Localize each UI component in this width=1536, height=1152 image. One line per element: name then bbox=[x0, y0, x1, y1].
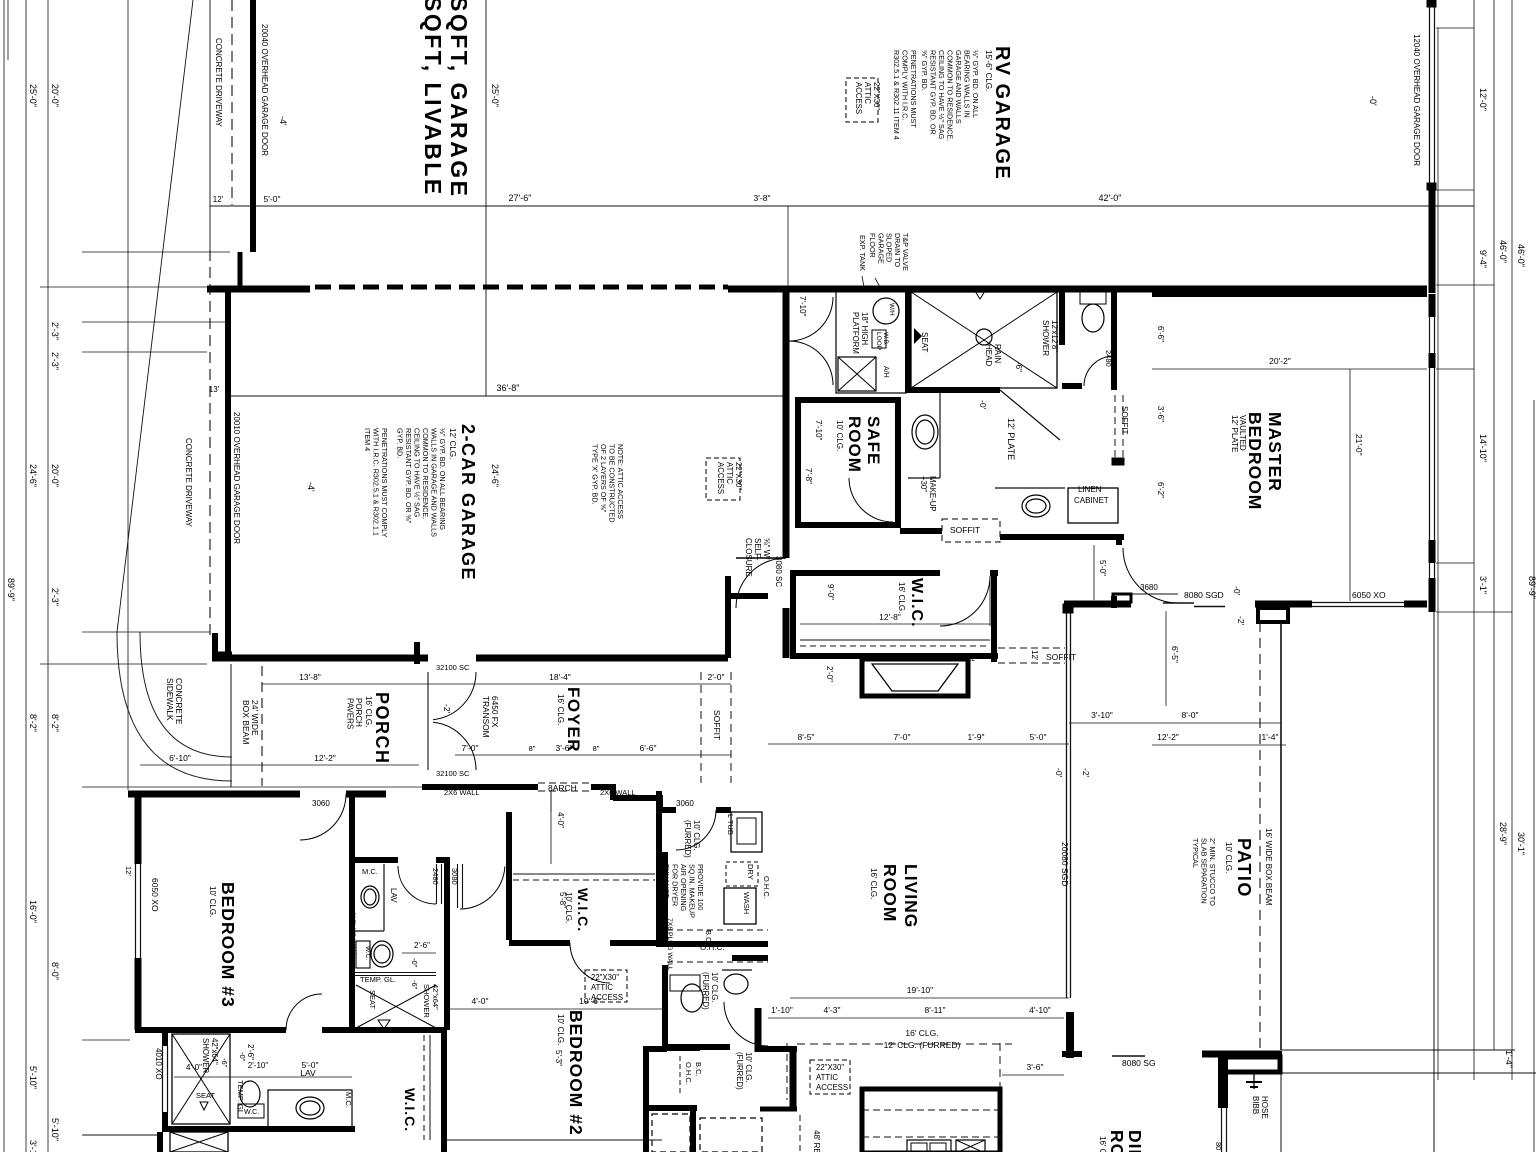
svg-text:8'-11": 8'-11" bbox=[924, 1005, 945, 1015]
svg-text:ACCESS: ACCESS bbox=[854, 82, 863, 114]
svg-text:12': 12' bbox=[124, 866, 133, 876]
svg-text:5'-10": 5'-10" bbox=[50, 1118, 60, 1141]
svg-text:⅝" GYP. BD.: ⅝" GYP. BD. bbox=[920, 50, 929, 91]
svg-text:SOFFIT: SOFFIT bbox=[1046, 652, 1076, 662]
svg-text:ATTIC: ATTIC bbox=[816, 1073, 838, 1082]
svg-text:22"X30": 22"X30" bbox=[734, 462, 743, 490]
svg-text:CLOSURE: CLOSURE bbox=[744, 538, 753, 577]
svg-text:25'-0": 25'-0" bbox=[28, 84, 38, 107]
svg-text:ATTIC: ATTIC bbox=[725, 462, 734, 484]
svg-text:DINING: DINING bbox=[1125, 1130, 1145, 1152]
svg-text:18'-4": 18'-4" bbox=[549, 672, 571, 682]
svg-text:16' CLG.: 16' CLG. bbox=[1098, 1136, 1107, 1152]
svg-text:+30": +30" bbox=[919, 476, 928, 492]
svg-text:12' PLATE: 12' PLATE bbox=[1230, 415, 1239, 452]
svg-text:9'-0": 9'-0" bbox=[826, 584, 835, 600]
svg-text:WASH: WASH bbox=[742, 892, 751, 914]
svg-text:SHOWER: SHOWER bbox=[1041, 320, 1050, 356]
svg-text:7'-0": 7'-0" bbox=[462, 743, 479, 753]
svg-text:16' CLG.: 16' CLG. bbox=[364, 696, 373, 727]
svg-text:2'-0": 2'-0" bbox=[825, 666, 834, 682]
svg-text:SEAT: SEAT bbox=[920, 332, 929, 352]
svg-text:LAV: LAV bbox=[389, 888, 398, 903]
svg-text:4'-0": 4'-0" bbox=[556, 812, 565, 828]
svg-text:20080 SGD: 20080 SGD bbox=[1060, 842, 1070, 886]
svg-text:5'-0": 5'-0" bbox=[264, 194, 281, 204]
svg-text:2X6 WALL: 2X6 WALL bbox=[444, 788, 480, 797]
svg-text:6'-5": 6'-5" bbox=[1170, 646, 1180, 663]
svg-text:32100 SC: 32100 SC bbox=[436, 769, 470, 778]
svg-text:20'-0": 20'-0" bbox=[50, 84, 60, 107]
svg-text:-0': -0' bbox=[1232, 586, 1242, 596]
svg-text:46'-0": 46'-0" bbox=[1516, 244, 1526, 267]
svg-text:ROOM: ROOM bbox=[845, 416, 864, 473]
svg-text:32100 SC: 32100 SC bbox=[436, 663, 470, 672]
svg-text:4'-3": 4'-3" bbox=[824, 1005, 841, 1015]
svg-text:PLATFORM: PLATFORM bbox=[851, 312, 860, 354]
svg-text:-0": -0" bbox=[410, 958, 419, 968]
svg-text:28'-9": 28'-9" bbox=[1498, 822, 1508, 845]
svg-text:2'-10": 2'-10" bbox=[248, 1061, 269, 1070]
svg-text:12'-2": 12'-2" bbox=[314, 753, 336, 763]
svg-text:FLOOR: FLOOR bbox=[868, 233, 877, 258]
svg-text:BOX BEAM: BOX BEAM bbox=[241, 700, 251, 744]
svg-text:5'-0": 5'-0" bbox=[1098, 560, 1107, 576]
svg-text:GYP. BD.: GYP. BD. bbox=[396, 428, 405, 458]
svg-text:3680: 3680 bbox=[1140, 583, 1158, 592]
svg-text:2'-6": 2'-6" bbox=[414, 941, 430, 950]
svg-text:O.H.C.: O.H.C. bbox=[700, 943, 724, 952]
svg-text:ROOM: ROOM bbox=[880, 864, 900, 922]
svg-text:⅝" W/: ⅝" W/ bbox=[762, 538, 771, 560]
svg-text:6" PLMB WALL: 6" PLMB WALL bbox=[349, 912, 356, 957]
svg-text:SAFE: SAFE bbox=[864, 416, 883, 465]
svg-text:27'-6": 27'-6" bbox=[509, 193, 532, 203]
svg-text:12': 12' bbox=[1030, 650, 1039, 661]
svg-text:8'-2": 8'-2" bbox=[28, 714, 38, 732]
svg-text:14'-10": 14'-10" bbox=[1478, 434, 1488, 462]
svg-text:ATTIC: ATTIC bbox=[591, 983, 613, 992]
svg-text:6050 XO: 6050 XO bbox=[1352, 590, 1386, 600]
svg-text:4'-0": 4'-0" bbox=[186, 1063, 202, 1072]
svg-text:8'-2": 8'-2" bbox=[50, 714, 60, 732]
svg-text:TRANSOM: TRANSOM bbox=[481, 696, 491, 738]
svg-text:HEAD: HEAD bbox=[984, 344, 993, 366]
svg-text:3'-6": 3'-6" bbox=[556, 743, 573, 753]
svg-text:SIDEWALK: SIDEWALK bbox=[165, 678, 175, 721]
svg-text:15'-6" CLG.: 15'-6" CLG. bbox=[984, 50, 993, 91]
svg-text:7X6 PLNG WALL: 7X6 PLNG WALL bbox=[666, 918, 673, 971]
svg-text:16' WIDE BOX BEAM: 16' WIDE BOX BEAM bbox=[1264, 828, 1273, 906]
svg-text:10' CLG.: 10' CLG. bbox=[208, 886, 217, 917]
svg-text:2480: 2480 bbox=[1104, 350, 1113, 367]
svg-text:6'-6": 6'-6" bbox=[1156, 326, 1165, 342]
svg-text:89'-9": 89'-9" bbox=[6, 578, 16, 601]
svg-text:2'-3": 2'-3" bbox=[50, 588, 60, 606]
svg-text:21'-0": 21'-0" bbox=[1354, 434, 1364, 456]
svg-text:PATIO: PATIO bbox=[1234, 838, 1254, 898]
svg-text:10'-6": 10'-6" bbox=[579, 996, 601, 1006]
svg-text:EXP. TANK: EXP. TANK bbox=[858, 235, 867, 271]
svg-text:5'-3": 5'-3" bbox=[554, 1050, 563, 1066]
svg-text:PAVERS: PAVERS bbox=[346, 698, 355, 729]
svg-text:LINEN: LINEN bbox=[1078, 485, 1102, 494]
svg-text:8080 SGD: 8080 SGD bbox=[1184, 590, 1224, 600]
svg-text:3'-8": 3'-8" bbox=[754, 193, 771, 203]
svg-text:10' CLG.: 10' CLG. bbox=[710, 972, 719, 1003]
svg-text:7'-10": 7'-10" bbox=[798, 296, 807, 317]
svg-text:12' CLG. (FURRED): 12' CLG. (FURRED) bbox=[884, 1040, 961, 1050]
svg-text:ACCESS: ACCESS bbox=[716, 462, 725, 494]
svg-text:L TUB: L TUB bbox=[726, 814, 735, 835]
svg-text:16'-0": 16'-0" bbox=[28, 900, 38, 923]
svg-text:W.B.: W.B. bbox=[882, 332, 889, 346]
svg-text:8": 8" bbox=[593, 744, 600, 753]
svg-text:-2': -2' bbox=[1081, 768, 1091, 778]
svg-text:4'-10": 4'-10" bbox=[1029, 1005, 1051, 1015]
svg-text:BEDROOM: BEDROOM bbox=[1245, 412, 1265, 510]
svg-text:12' PLATE: 12' PLATE bbox=[1006, 418, 1016, 460]
svg-text:22"X30": 22"X30" bbox=[816, 1063, 844, 1072]
svg-text:-4': -4' bbox=[306, 482, 316, 492]
svg-text:-2': -2' bbox=[442, 704, 452, 714]
svg-text:SEAT: SEAT bbox=[368, 990, 377, 1009]
svg-text:42"x64": 42"x64" bbox=[431, 984, 440, 1010]
svg-text:2-CAR GARAGE: 2-CAR GARAGE bbox=[458, 424, 478, 581]
svg-text:6'-2": 6'-2" bbox=[1156, 482, 1165, 498]
svg-text:12' CLG.: 12' CLG. bbox=[448, 428, 457, 459]
svg-text:13'-8": 13'-8" bbox=[299, 672, 321, 682]
svg-text:-6": -6" bbox=[220, 1058, 229, 1068]
svg-text:TEMP. GL.: TEMP. GL. bbox=[360, 975, 396, 984]
svg-text:16' CLG.: 16' CLG. bbox=[905, 1028, 938, 1038]
svg-text:A/H: A/H bbox=[882, 366, 889, 378]
svg-text:8'-0": 8'-0" bbox=[1182, 710, 1199, 720]
svg-text:-4': -4' bbox=[278, 116, 288, 126]
svg-text:LIVING: LIVING bbox=[901, 864, 921, 928]
svg-text:B.C.: B.C. bbox=[694, 1062, 703, 1077]
svg-text:-6": -6" bbox=[1014, 362, 1023, 372]
svg-text:ITEM 4: ITEM 4 bbox=[363, 428, 372, 451]
svg-text:2480: 2480 bbox=[431, 868, 440, 885]
svg-text:W/H: W/H bbox=[888, 303, 895, 316]
svg-text:42'-0": 42'-0" bbox=[1099, 193, 1122, 203]
svg-text:20'-0": 20'-0" bbox=[50, 464, 60, 487]
svg-text:10' CLG.: 10' CLG. bbox=[835, 420, 844, 451]
svg-text:ATTIC: ATTIC bbox=[863, 82, 872, 104]
svg-text:SOFFIT: SOFFIT bbox=[950, 525, 980, 535]
svg-text:10' CLG.: 10' CLG. bbox=[556, 1014, 565, 1045]
svg-text:BEDROOM #3: BEDROOM #3 bbox=[218, 882, 238, 1008]
svg-text:PORCH: PORCH bbox=[372, 692, 392, 765]
svg-text:ROOM: ROOM bbox=[1107, 1130, 1127, 1152]
svg-text:2'-3": 2'-3" bbox=[50, 352, 60, 370]
svg-text:SEAT: SEAT bbox=[196, 1091, 215, 1100]
svg-text:CONCRETE DRIVEWAY: CONCRETE DRIVEWAY bbox=[214, 38, 223, 128]
svg-text:36'-8": 36'-8" bbox=[497, 383, 520, 393]
svg-text:20'-2": 20'-2" bbox=[1269, 356, 1291, 366]
svg-text:12': 12' bbox=[213, 195, 224, 204]
svg-text:LOOP: LOOP bbox=[875, 332, 882, 350]
svg-text:ACCESS: ACCESS bbox=[816, 1083, 848, 1092]
svg-text:16' CLG.: 16' CLG. bbox=[556, 694, 565, 725]
svg-text:W.C.: W.C. bbox=[244, 1109, 259, 1116]
svg-text:3080: 3080 bbox=[450, 868, 459, 885]
svg-text:22"X30": 22"X30" bbox=[872, 82, 881, 110]
svg-text:SOFFIT: SOFFIT bbox=[1120, 406, 1129, 435]
svg-text:M.C.: M.C. bbox=[362, 867, 378, 876]
svg-text:DRY: DRY bbox=[746, 864, 755, 880]
svg-text:O.H.C.: O.H.C. bbox=[762, 876, 771, 899]
svg-text:3'-6": 3'-6" bbox=[1027, 1062, 1044, 1072]
svg-text:12'x12'8": 12'x12'8" bbox=[1050, 320, 1059, 352]
svg-text:W.I.C.: W.I.C. bbox=[402, 1088, 418, 1132]
svg-text:4'-0": 4'-0" bbox=[472, 996, 489, 1006]
svg-text:RV GARAGE: RV GARAGE bbox=[991, 46, 1013, 180]
svg-text:W.I.C.: W.I.C. bbox=[908, 578, 925, 628]
svg-text:CONCRETE DRIVEWAY: CONCRETE DRIVEWAY bbox=[184, 438, 193, 528]
svg-text:16' CLG.: 16' CLG. bbox=[869, 868, 878, 899]
svg-text:8": 8" bbox=[529, 744, 536, 753]
svg-text:30'-1": 30'-1" bbox=[1516, 832, 1526, 855]
svg-text:6'-6": 6'-6" bbox=[640, 743, 657, 753]
svg-text:6050 XO: 6050 XO bbox=[150, 878, 160, 912]
svg-text:2'-0": 2'-0" bbox=[708, 672, 725, 682]
svg-text:LAV: LAV bbox=[300, 1068, 316, 1078]
svg-text:M.C.: M.C. bbox=[344, 1092, 353, 1108]
svg-text:10' CLG.: 10' CLG. bbox=[692, 820, 701, 851]
svg-text:20010 OVERHEAD GARAGE DOOR: 20010 OVERHEAD GARAGE DOOR bbox=[232, 412, 241, 544]
svg-text:(FURRED): (FURRED) bbox=[701, 972, 710, 1010]
svg-text:-2': -2' bbox=[1236, 616, 1246, 626]
svg-text:W.I.C.: W.I.C. bbox=[575, 888, 591, 932]
svg-text:3'-10": 3'-10" bbox=[1091, 710, 1113, 720]
svg-text:18" HIGH: 18" HIGH bbox=[860, 312, 869, 345]
svg-text:80: 80 bbox=[1214, 1142, 1223, 1150]
svg-text:SHOWER: SHOWER bbox=[201, 1038, 210, 1073]
svg-text:5'-0": 5'-0" bbox=[1030, 732, 1047, 742]
svg-text:12'-8": 12'-8" bbox=[879, 612, 901, 622]
svg-text:42"x64": 42"x64" bbox=[210, 1038, 219, 1065]
svg-text:48' REF: 48' REF bbox=[812, 1130, 821, 1152]
svg-text:8'-0": 8'-0" bbox=[50, 962, 60, 980]
svg-text:MASTER: MASTER bbox=[1265, 412, 1285, 492]
svg-text:19'-10": 19'-10" bbox=[907, 985, 933, 995]
svg-text:3'-1": 3'-1" bbox=[28, 1140, 38, 1152]
svg-text:8'-5": 8'-5" bbox=[798, 732, 815, 742]
svg-text:1'-9": 1'-9" bbox=[968, 732, 985, 742]
svg-text:1'-4": 1'-4" bbox=[1504, 1050, 1514, 1068]
svg-text:1'-4": 1'-4" bbox=[1262, 732, 1279, 742]
svg-text:4010 XO: 4010 XO bbox=[154, 1048, 163, 1080]
svg-text:BEDROOM #2: BEDROOM #2 bbox=[566, 1010, 586, 1136]
svg-text:SQFT, GARAGE: SQFT, GARAGE bbox=[446, 0, 472, 199]
svg-text:20040 OVERHEAD GARAGE DOOR: 20040 OVERHEAD GARAGE DOOR bbox=[260, 24, 269, 156]
svg-text:CABINET: CABINET bbox=[1074, 496, 1109, 505]
svg-text:12040 OVERHEAD GARAGE DOOR: 12040 OVERHEAD GARAGE DOOR bbox=[1412, 34, 1421, 166]
svg-text:3060: 3060 bbox=[312, 799, 330, 808]
svg-text:10' CLG.: 10' CLG. bbox=[744, 1052, 753, 1083]
svg-text:3080 SC: 3080 SC bbox=[774, 556, 783, 587]
svg-text:22"X30": 22"X30" bbox=[591, 973, 619, 982]
svg-text:9'-4": 9'-4" bbox=[1478, 250, 1488, 268]
svg-text:-0': -0' bbox=[1054, 768, 1064, 778]
svg-text:3060: 3060 bbox=[676, 799, 694, 808]
svg-text:24'-6": 24'-6" bbox=[490, 464, 500, 487]
svg-text:SQFT, LIVABLE: SQFT, LIVABLE bbox=[420, 0, 446, 197]
svg-text:(FURRED): (FURRED) bbox=[735, 1052, 744, 1090]
svg-text:-0": -0" bbox=[238, 1052, 247, 1062]
svg-text:-0': -0' bbox=[1368, 96, 1378, 106]
svg-text:SELF-: SELF- bbox=[753, 538, 762, 561]
svg-text:25'-0": 25'-0" bbox=[490, 84, 500, 107]
svg-text:3'-1": 3'-1" bbox=[1478, 576, 1488, 594]
svg-text:16' CLG.: 16' CLG. bbox=[897, 582, 906, 613]
svg-text:2X6 WALL: 2X6 WALL bbox=[600, 788, 636, 797]
svg-text:MAKE-UP: MAKE-UP bbox=[928, 476, 937, 512]
svg-text:2'-3": 2'-3" bbox=[50, 322, 60, 340]
svg-text:1'-10": 1'-10" bbox=[771, 1005, 793, 1015]
svg-text:12'-0": 12'-0" bbox=[1478, 88, 1488, 111]
svg-text:3'-6": 3'-6" bbox=[1156, 406, 1165, 422]
svg-text:2X6 WALL: 2X6 WALL bbox=[942, 656, 975, 663]
svg-text:89'-9": 89'-9" bbox=[1527, 576, 1536, 599]
svg-text:-6": -6" bbox=[410, 980, 419, 990]
svg-text:7'-0": 7'-0" bbox=[894, 732, 911, 742]
svg-text:SOFFIT: SOFFIT bbox=[712, 710, 722, 740]
svg-text:7'-10": 7'-10" bbox=[814, 420, 823, 441]
svg-text:7'-8": 7'-8" bbox=[804, 468, 813, 484]
svg-text:TYPE 'X' GYP. BD.: TYPE 'X' GYP. BD. bbox=[591, 444, 600, 505]
svg-text:O.H.C.: O.H.C. bbox=[684, 1062, 693, 1085]
svg-text:5'-10": 5'-10" bbox=[28, 1066, 38, 1089]
svg-text:10' CLG.: 10' CLG. bbox=[1224, 842, 1233, 873]
svg-text:RAIN: RAIN bbox=[993, 344, 1002, 363]
svg-text:-0': -0' bbox=[978, 400, 988, 410]
svg-text:EXHAUST: EXHAUST bbox=[662, 864, 671, 899]
svg-text:8080 SG: 8080 SG bbox=[1122, 1058, 1156, 1068]
svg-text:HOSE: HOSE bbox=[1260, 1096, 1269, 1119]
svg-text:24'-6": 24'-6" bbox=[28, 464, 38, 487]
svg-text:BIBB: BIBB bbox=[1251, 1096, 1260, 1114]
svg-text:(FURRED): (FURRED) bbox=[683, 820, 692, 858]
svg-text:SHOWER: SHOWER bbox=[422, 984, 431, 1018]
svg-text:12'-2": 12'-2" bbox=[1157, 732, 1179, 742]
svg-text:5'-8": 5'-8" bbox=[558, 892, 567, 908]
svg-text:W.C.: W.C. bbox=[364, 946, 371, 960]
svg-text:TYPICAL: TYPICAL bbox=[1191, 838, 1200, 868]
svg-text:6'-10": 6'-10" bbox=[169, 753, 191, 763]
svg-text:R302.5.1 & R302.11 ITEM 4: R302.5.1 & R302.11 ITEM 4 bbox=[892, 50, 901, 140]
svg-text:46'-0": 46'-0" bbox=[1498, 240, 1508, 263]
